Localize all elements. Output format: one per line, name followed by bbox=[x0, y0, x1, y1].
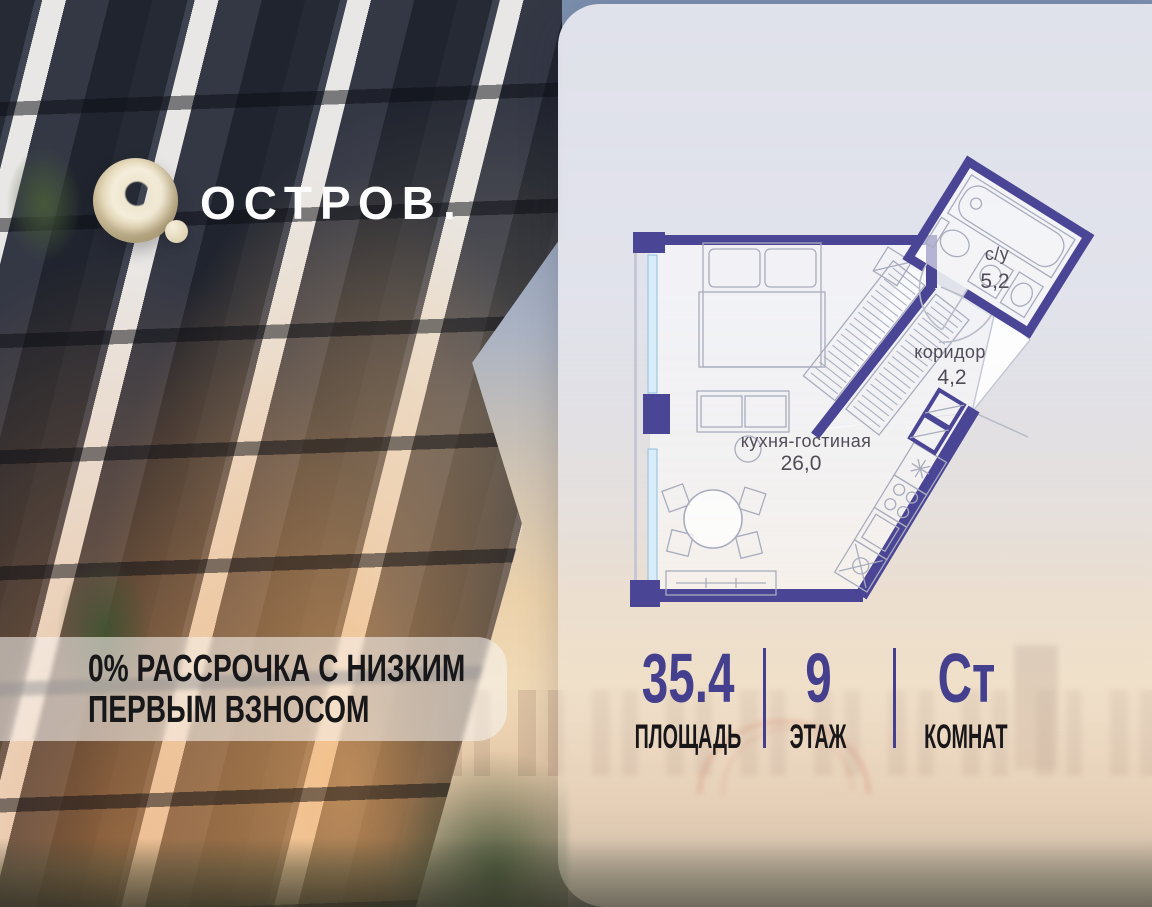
room-area-corridor: 4,2 bbox=[857, 366, 1047, 390]
promo-line-1: 0% РАССРОЧКА С НИЗКИМ bbox=[88, 649, 465, 690]
stat-floor-value: 9 bbox=[805, 646, 831, 710]
promo-ribbon: 0% РАССРОЧКА С НИЗКИМ ПЕРВЫМ ВЗНОСОМ bbox=[0, 637, 507, 741]
stat-rooms-value: Ст bbox=[937, 646, 995, 710]
balcony-greenery bbox=[6, 146, 82, 262]
stat-rooms: Ст КОМНАТ bbox=[866, 646, 1066, 754]
logo-dot-icon bbox=[165, 220, 188, 243]
promo-text: 0% РАССРОЧКА С НИЗКИМ ПЕРВЫМ ВЗНОСОМ bbox=[88, 649, 598, 731]
brand-name: ОСТРОВ. bbox=[200, 176, 464, 230]
room-label-corridor: коридор bbox=[855, 342, 1045, 363]
ad-banner: ОСТРОВ. 0% РАССРОЧКА С НИЗКИМ ПЕРВЫМ ВЗН… bbox=[0, 0, 1152, 907]
window bbox=[648, 449, 657, 582]
stat-rooms-label: КОМНАТ bbox=[924, 720, 1007, 754]
listing-stats: 35.4 ПЛОЩАДЬ 9 ЭТАЖ Ст КОМНАТ bbox=[558, 634, 1152, 764]
stat-floor-label: ЭТАЖ bbox=[790, 720, 847, 754]
room-area-bathroom: 5,2 bbox=[900, 270, 1090, 294]
room-label-bathroom: с/у bbox=[902, 244, 1092, 265]
window bbox=[648, 255, 657, 393]
room-label-kitchen-living: кухня-гостиная bbox=[711, 431, 901, 452]
listing-card[interactable]: с/у 5,2 коридор 4,2 кухня-гостиная 26,0 … bbox=[558, 4, 1152, 907]
room-area-kitchen-living: 26,0 bbox=[706, 452, 896, 476]
promo-line-2: ПЕРВЫМ ВЗНОСОМ bbox=[88, 690, 369, 731]
